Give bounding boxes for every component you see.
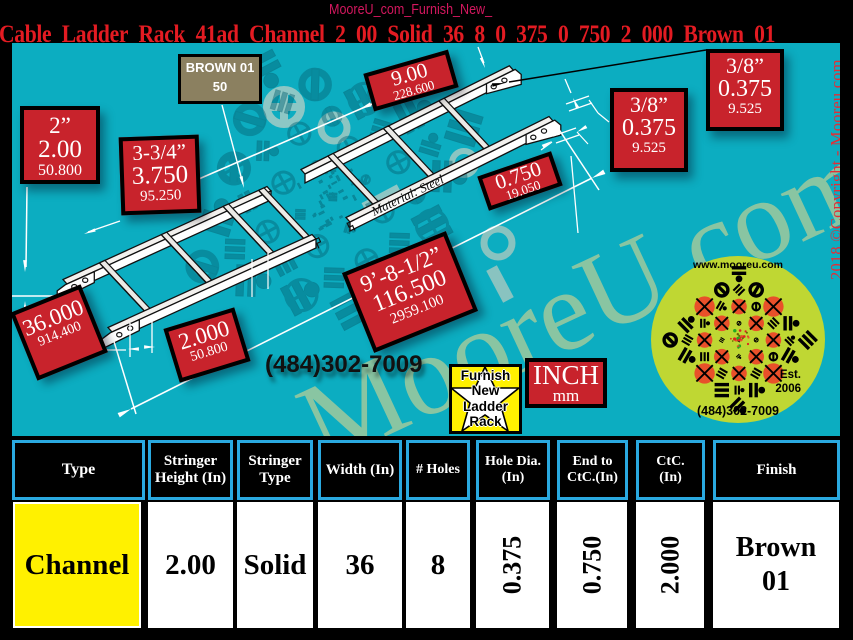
svg-text:Material: Steel: Material: Steel [368,171,446,219]
